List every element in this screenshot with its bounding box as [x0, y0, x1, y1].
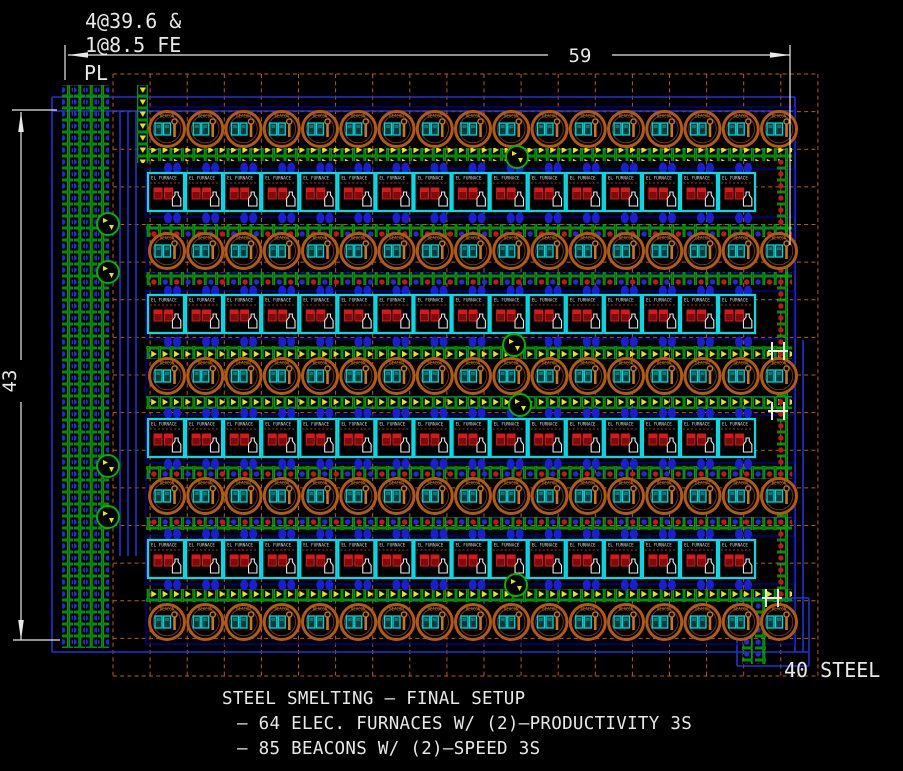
beacon: BEACON — [532, 605, 567, 640]
beacon-label: BEACON — [581, 361, 596, 366]
beacon: BEACON — [379, 112, 414, 147]
electric-furnace: EL FURNACE — [338, 295, 374, 333]
beacon-label: BEACON — [275, 607, 290, 612]
blueprint-entities: EL FURNACEEL FURNACEEL FURNACEEL FURNACE… — [52, 74, 818, 676]
beacon: BEACON — [570, 605, 605, 640]
speed-module-icon — [308, 123, 315, 135]
electric-furnace: EL FURNACE — [414, 540, 450, 578]
beacon-label: BEACON — [466, 236, 481, 241]
speed-module-icon — [737, 490, 744, 502]
beacon: BEACON — [685, 234, 720, 269]
beacon-label: BEACON — [198, 607, 213, 612]
beacon: BEACON — [647, 479, 682, 514]
belt-curve-icon — [503, 334, 525, 356]
beacon: BEACON — [647, 234, 682, 269]
electric-furnace: EL FURNACE — [681, 540, 717, 578]
speed-module-icon — [461, 616, 468, 628]
speed-module-icon — [729, 490, 736, 502]
beacon: BEACON — [456, 112, 491, 147]
speed-module-icon — [202, 245, 209, 257]
beacon-label: BEACON — [351, 361, 366, 366]
caption-furnaces: – 64 ELEC. FURNACES W/ (2)–PRODUCTIVITY … — [237, 714, 692, 734]
beacon-label: BEACON — [160, 361, 175, 366]
beacon: BEACON — [341, 359, 376, 394]
speed-module-icon — [278, 490, 285, 502]
speed-module-icon — [393, 490, 400, 502]
beacon: BEACON — [417, 605, 452, 640]
speed-module-icon — [270, 490, 277, 502]
furnace-label: EL FURNACE — [417, 176, 443, 182]
speed-module-icon — [355, 245, 362, 257]
furnace-label: EL FURNACE — [646, 422, 672, 428]
beacon: BEACON — [494, 234, 529, 269]
beacon: BEACON — [762, 112, 797, 147]
electric-furnace: EL FURNACE — [224, 540, 260, 578]
electric-furnace: EL FURNACE — [567, 540, 603, 578]
electric-furnace: EL FURNACE — [186, 295, 222, 333]
speed-module-icon — [623, 490, 630, 502]
speed-module-icon — [508, 370, 515, 382]
furnace-label: EL FURNACE — [151, 298, 177, 304]
beacon: BEACON — [532, 359, 567, 394]
furnace-label: EL FURNACE — [570, 298, 596, 304]
furnace-label: EL FURNACE — [303, 176, 329, 182]
beacon-label: BEACON — [351, 114, 366, 119]
speed-module-icon — [623, 245, 630, 257]
beacon: BEACON — [379, 359, 414, 394]
speed-module-icon — [546, 490, 553, 502]
beacon-label: BEACON — [504, 236, 519, 241]
beacon-label: BEACON — [734, 361, 749, 366]
furnace-label: EL FURNACE — [151, 422, 177, 428]
speed-module-icon — [699, 616, 706, 628]
furnace-label: EL FURNACE — [608, 543, 634, 549]
electric-furnace: EL FURNACE — [376, 419, 412, 457]
speed-module-icon — [546, 123, 553, 135]
speed-module-icon — [584, 123, 591, 135]
speed-module-icon — [317, 123, 324, 135]
speed-module-icon — [538, 490, 545, 502]
speed-module-icon — [317, 245, 324, 257]
electric-furnace: EL FURNACE — [719, 419, 755, 457]
speed-module-icon — [652, 490, 659, 502]
electric-furnace: EL FURNACE — [719, 540, 755, 578]
speed-module-icon — [461, 245, 468, 257]
furnace-label: EL FURNACE — [532, 298, 558, 304]
beacon: BEACON — [417, 359, 452, 394]
speed-module-icon — [240, 370, 247, 382]
electric-furnace: EL FURNACE — [643, 540, 679, 578]
electric-furnace: EL FURNACE — [148, 540, 184, 578]
beacon-label: BEACON — [160, 236, 175, 241]
beacon: BEACON — [226, 479, 261, 514]
speed-module-icon — [729, 123, 736, 135]
speed-module-icon — [423, 370, 430, 382]
speed-module-icon — [584, 370, 591, 382]
electric-furnace: EL FURNACE — [453, 419, 489, 457]
furnace-label: EL FURNACE — [646, 543, 672, 549]
furnace-label: EL FURNACE — [684, 543, 710, 549]
beacon-label: BEACON — [275, 114, 290, 119]
belt-curve-icon — [97, 506, 119, 528]
beacon-label: BEACON — [772, 236, 787, 241]
electric-furnace: EL FURNACE — [300, 540, 336, 578]
speed-module-icon — [202, 123, 209, 135]
electric-furnace: EL FURNACE — [605, 295, 641, 333]
speed-module-icon — [346, 123, 353, 135]
beacon: BEACON — [341, 479, 376, 514]
beacon-label: BEACON — [275, 361, 290, 366]
speed-module-icon — [767, 245, 774, 257]
beacon-label: BEACON — [619, 361, 634, 366]
electric-furnace: EL FURNACE — [224, 173, 260, 211]
speed-module-icon — [355, 616, 362, 628]
beacon-label: BEACON — [619, 481, 634, 486]
beacon: BEACON — [609, 605, 644, 640]
furnace-label: EL FURNACE — [722, 298, 748, 304]
speed-module-icon — [652, 616, 659, 628]
ratio-note-line1: 4@39.6 & — [85, 9, 181, 33]
beacon-label: BEACON — [657, 481, 672, 486]
belt-curve-icon — [97, 261, 119, 283]
electric-furnace: EL FURNACE — [224, 419, 260, 457]
electric-furnace: EL FURNACE — [148, 419, 184, 457]
beacon: BEACON — [417, 479, 452, 514]
electric-furnace: EL FURNACE — [453, 295, 489, 333]
furnace-label: EL FURNACE — [494, 176, 520, 182]
speed-module-icon — [538, 370, 545, 382]
speed-module-icon — [767, 616, 774, 628]
speed-module-icon — [278, 370, 285, 382]
beacon-label: BEACON — [619, 236, 634, 241]
furnace-label: EL FURNACE — [417, 298, 443, 304]
beacon-label: BEACON — [236, 236, 251, 241]
speed-module-icon — [355, 123, 362, 135]
speed-module-icon — [499, 616, 506, 628]
electric-furnace: EL FURNACE — [529, 419, 565, 457]
speed-module-icon — [546, 616, 553, 628]
electric-furnace: EL FURNACE — [567, 295, 603, 333]
electric-furnace: EL FURNACE — [529, 173, 565, 211]
beacon-label: BEACON — [389, 114, 404, 119]
beacon: BEACON — [570, 234, 605, 269]
furnace-label: EL FURNACE — [303, 543, 329, 549]
speed-module-icon — [614, 123, 621, 135]
beacon: BEACON — [188, 359, 223, 394]
beacon: BEACON — [341, 234, 376, 269]
beacon: BEACON — [303, 234, 338, 269]
beacon-label: BEACON — [351, 607, 366, 612]
beacon: BEACON — [609, 234, 644, 269]
beacon: BEACON — [647, 605, 682, 640]
beacon-label: BEACON — [504, 481, 519, 486]
electric-furnace: EL FURNACE — [491, 419, 527, 457]
beacon-label: BEACON — [772, 114, 787, 119]
speed-module-icon — [729, 370, 736, 382]
speed-module-icon — [278, 245, 285, 257]
electric-furnace: EL FURNACE — [605, 419, 641, 457]
beacon: BEACON — [609, 479, 644, 514]
belt-curve-icon — [509, 394, 531, 416]
speed-module-icon — [691, 245, 698, 257]
beacon-label: BEACON — [389, 236, 404, 241]
beacon-label: BEACON — [466, 361, 481, 366]
speed-module-icon — [355, 490, 362, 502]
beacon: BEACON — [264, 359, 299, 394]
beacon-label: BEACON — [198, 481, 213, 486]
speed-module-icon — [576, 123, 583, 135]
speed-module-icon — [661, 616, 668, 628]
electric-furnace: EL FURNACE — [491, 540, 527, 578]
beacon: BEACON — [303, 112, 338, 147]
furnace-label: EL FURNACE — [532, 543, 558, 549]
input-belt-lane — [98, 85, 109, 648]
speed-module-icon — [308, 616, 315, 628]
speed-module-icon — [385, 616, 392, 628]
beacon-label: BEACON — [313, 607, 328, 612]
electric-furnace: EL FURNACE — [719, 295, 755, 333]
beacon: BEACON — [723, 359, 758, 394]
beacon-label: BEACON — [160, 481, 175, 486]
beacon-label: BEACON — [619, 607, 634, 612]
electric-furnace: EL FURNACE — [453, 173, 489, 211]
belt — [146, 148, 792, 161]
speed-module-icon — [232, 616, 239, 628]
beacon-label: BEACON — [504, 361, 519, 366]
beacon-label: BEACON — [734, 607, 749, 612]
speed-module-icon — [278, 616, 285, 628]
speed-module-icon — [470, 245, 477, 257]
speed-module-icon — [193, 370, 200, 382]
furnace-label: EL FURNACE — [151, 176, 177, 182]
beacon: BEACON — [303, 359, 338, 394]
beacon: BEACON — [150, 359, 185, 394]
beacon-label: BEACON — [466, 114, 481, 119]
furnace-label: EL FURNACE — [456, 298, 482, 304]
dim-height-label: 43 — [0, 370, 21, 393]
beacon: BEACON — [570, 112, 605, 147]
beacon-label: BEACON — [236, 114, 251, 119]
speed-module-icon — [614, 370, 621, 382]
beacon: BEACON — [379, 605, 414, 640]
electric-furnace: EL FURNACE — [414, 295, 450, 333]
furnace-label: EL FURNACE — [646, 176, 672, 182]
electric-furnace: EL FURNACE — [567, 419, 603, 457]
beacon: BEACON — [494, 359, 529, 394]
blueprint-svg: EL FURNACEEL FURNACEEL FURNACEEL FURNACE… — [0, 0, 903, 771]
caption-title: STEEL SMELTING – FINAL SETUP — [222, 689, 525, 709]
beacon-label: BEACON — [695, 361, 710, 366]
beacon-label: BEACON — [389, 361, 404, 366]
beacon: BEACON — [647, 359, 682, 394]
beacon-label: BEACON — [734, 114, 749, 119]
speed-module-icon — [423, 245, 430, 257]
speed-module-icon — [776, 370, 783, 382]
electric-furnace: EL FURNACE — [186, 419, 222, 457]
speed-module-icon — [346, 616, 353, 628]
beacon: BEACON — [303, 479, 338, 514]
beacon: BEACON — [609, 359, 644, 394]
speed-module-icon — [346, 245, 353, 257]
electric-furnace: EL FURNACE — [376, 173, 412, 211]
beacon-label: BEACON — [275, 481, 290, 486]
speed-module-icon — [155, 616, 162, 628]
electric-furnace: EL FURNACE — [224, 295, 260, 333]
beacon-label: BEACON — [160, 114, 175, 119]
beacon-label: BEACON — [351, 481, 366, 486]
input-belt-lane — [86, 85, 97, 648]
belt-curve-icon — [505, 574, 527, 596]
furnace-label: EL FURNACE — [608, 176, 634, 182]
beacon: BEACON — [226, 605, 261, 640]
furnace-label: EL FURNACE — [494, 422, 520, 428]
furnace-label: EL FURNACE — [265, 176, 291, 182]
speed-module-icon — [546, 245, 553, 257]
electric-furnace: EL FURNACE — [338, 173, 374, 211]
beacon-label: BEACON — [772, 361, 787, 366]
speed-module-icon — [661, 370, 668, 382]
speed-module-icon — [729, 616, 736, 628]
electric-furnace: EL FURNACE — [262, 173, 298, 211]
speed-module-icon — [623, 370, 630, 382]
furnace-label: EL FURNACE — [532, 422, 558, 428]
speed-module-icon — [308, 490, 315, 502]
electric-furnace: EL FURNACE — [414, 419, 450, 457]
beacon: BEACON — [494, 605, 529, 640]
beacon: BEACON — [188, 112, 223, 147]
furnace-label: EL FURNACE — [570, 543, 596, 549]
beacon-label: BEACON — [198, 114, 213, 119]
speed-module-icon — [461, 123, 468, 135]
electric-furnace: EL FURNACE — [338, 540, 374, 578]
speed-module-icon — [661, 245, 668, 257]
beacon-label: BEACON — [542, 607, 557, 612]
speed-module-icon — [767, 370, 774, 382]
beacon: BEACON — [609, 112, 644, 147]
speed-module-icon — [393, 616, 400, 628]
speed-module-icon — [240, 245, 247, 257]
beacon: BEACON — [379, 479, 414, 514]
speed-module-icon — [232, 245, 239, 257]
cad-drawing: EL FURNACEEL FURNACEEL FURNACEEL FURNACE… — [0, 0, 903, 771]
speed-module-icon — [431, 245, 438, 257]
furnace-label: EL FURNACE — [227, 543, 253, 549]
speed-module-icon — [240, 490, 247, 502]
speed-module-icon — [538, 123, 545, 135]
speed-module-icon — [270, 245, 277, 257]
furnace-label: EL FURNACE — [189, 422, 215, 428]
furnace-label: EL FURNACE — [608, 422, 634, 428]
furnace-label: EL FURNACE — [417, 543, 443, 549]
beacon-label: BEACON — [581, 607, 596, 612]
speed-module-icon — [699, 370, 706, 382]
beacon: BEACON — [685, 359, 720, 394]
speed-module-icon — [155, 490, 162, 502]
input-belt-lane — [62, 85, 73, 648]
speed-module-icon — [164, 245, 171, 257]
furnace-label: EL FURNACE — [456, 176, 482, 182]
speed-module-icon — [614, 616, 621, 628]
beacon: BEACON — [762, 359, 797, 394]
electric-furnace: EL FURNACE — [186, 540, 222, 578]
furnace-label: EL FURNACE — [303, 422, 329, 428]
speed-module-icon — [202, 490, 209, 502]
beacon: BEACON — [723, 112, 758, 147]
beacon-label: BEACON — [236, 361, 251, 366]
beacon: BEACON — [532, 112, 567, 147]
electric-furnace: EL FURNACE — [491, 295, 527, 333]
beacon-label: BEACON — [581, 481, 596, 486]
electric-furnace: EL FURNACE — [491, 173, 527, 211]
electric-furnace: EL FURNACE — [148, 173, 184, 211]
speed-module-icon — [538, 245, 545, 257]
beacon-label: BEACON — [734, 481, 749, 486]
furnace-label: EL FURNACE — [379, 176, 405, 182]
beacon-label: BEACON — [772, 481, 787, 486]
speed-module-icon — [355, 370, 362, 382]
speed-module-icon — [767, 490, 774, 502]
furnace-label: EL FURNACE — [646, 298, 672, 304]
furnace-label: EL FURNACE — [722, 176, 748, 182]
beacon-label: BEACON — [657, 607, 672, 612]
speed-module-icon — [202, 370, 209, 382]
beacon-label: BEACON — [657, 361, 672, 366]
speed-module-icon — [652, 123, 659, 135]
beacon: BEACON — [264, 234, 299, 269]
speed-module-icon — [652, 370, 659, 382]
speed-module-icon — [499, 490, 506, 502]
beacon: BEACON — [150, 234, 185, 269]
furnace-label: EL FURNACE — [265, 298, 291, 304]
speed-module-icon — [461, 370, 468, 382]
ratio-note-line2: 1@8.5 FE — [85, 33, 181, 57]
electric-furnace: EL FURNACE — [262, 295, 298, 333]
beacon-label: BEACON — [275, 236, 290, 241]
beacon: BEACON — [226, 112, 261, 147]
speed-module-icon — [385, 490, 392, 502]
speed-module-icon — [538, 616, 545, 628]
speed-module-icon — [737, 123, 744, 135]
speed-module-icon — [576, 370, 583, 382]
electric-furnace: EL FURNACE — [681, 295, 717, 333]
speed-module-icon — [240, 616, 247, 628]
beacon: BEACON — [762, 234, 797, 269]
beacon-label: BEACON — [657, 114, 672, 119]
electric-furnace: EL FURNACE — [186, 173, 222, 211]
furnace-label: EL FURNACE — [570, 422, 596, 428]
beacon-label: BEACON — [695, 236, 710, 241]
beacon: BEACON — [723, 479, 758, 514]
dim-arrow-top — [18, 112, 24, 132]
speed-module-icon — [202, 616, 209, 628]
speed-module-icon — [576, 490, 583, 502]
beacon: BEACON — [532, 234, 567, 269]
beacon-label: BEACON — [734, 236, 749, 241]
speed-module-icon — [691, 616, 698, 628]
electric-furnace: EL FURNACE — [681, 173, 717, 211]
beacon: BEACON — [264, 479, 299, 514]
beacon-label: BEACON — [198, 236, 213, 241]
speed-module-icon — [193, 616, 200, 628]
speed-module-icon — [164, 616, 171, 628]
speed-module-icon — [431, 123, 438, 135]
beacon-label: BEACON — [542, 361, 557, 366]
speed-module-icon — [317, 370, 324, 382]
beacon: BEACON — [647, 112, 682, 147]
speed-module-icon — [270, 370, 277, 382]
speed-module-icon — [652, 245, 659, 257]
furnace-label: EL FURNACE — [151, 543, 177, 549]
